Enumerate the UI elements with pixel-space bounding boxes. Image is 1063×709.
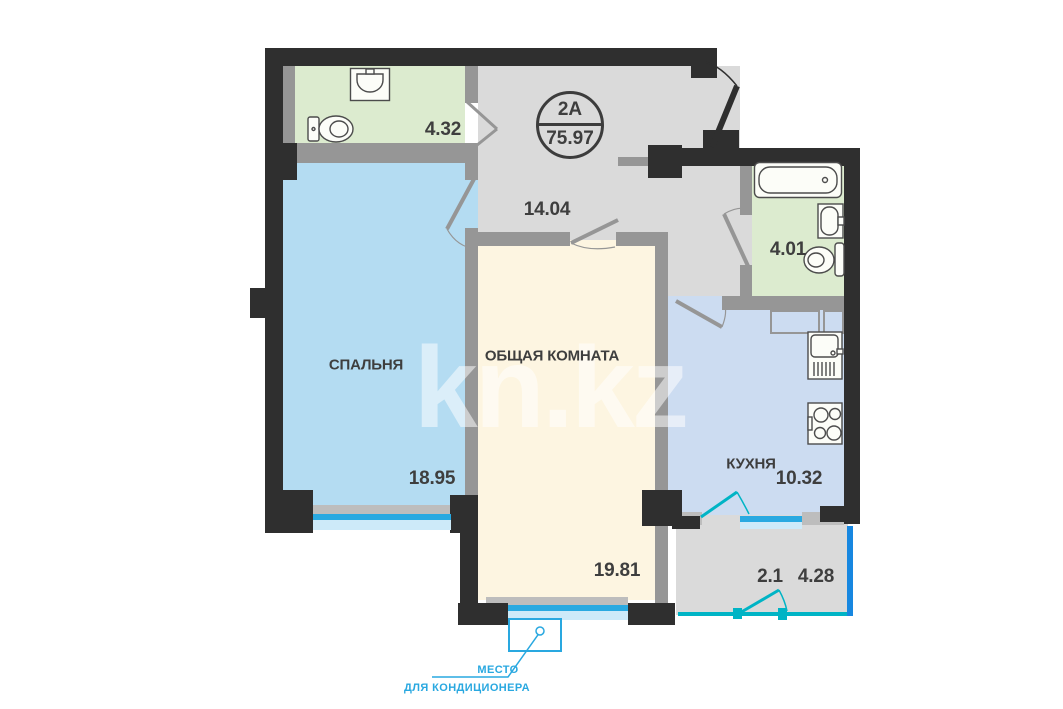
wall-segment [283,143,478,163]
room-balcony [676,515,848,615]
toilet-icon [307,112,355,146]
balcony-door-post [778,608,787,620]
label-wc-area: 4.32 [425,119,461,141]
wall-segment [265,490,313,533]
label-bedroom-area: 18.95 [409,468,456,490]
wall-segment [265,143,297,180]
bathtub-icon [753,161,843,199]
wall-segment [740,166,752,215]
label-kitchen-name: КУХНЯ [726,456,775,473]
wall-segment [703,130,739,150]
unit-badge: 2А 75.97 [536,91,604,159]
kitchen-sink-icon [807,331,845,381]
badge-divider [539,123,601,126]
wall-segment [265,48,283,525]
unit-type-label: 2А [539,99,601,121]
ac-note-line1: МЕСТО [477,664,518,676]
label-kitchen-area: 10.32 [776,468,823,490]
balcony-door-post [733,608,742,619]
toilet-icon [802,240,846,280]
wall-segment [618,157,648,166]
sink-icon [817,203,845,239]
kitchen-window-reveal [740,522,802,529]
wall-segment [672,516,700,529]
label-hallway-area: 14.04 [524,199,571,221]
wall-segment [722,296,844,310]
wall-segment [616,232,668,246]
unit-area-label: 75.97 [539,128,601,150]
label-balcony-coeff: 2.1 [757,566,783,588]
label-bedroom-name: СПАЛЬНЯ [329,357,403,374]
wall-segment [628,603,675,625]
wall-segment [820,506,860,522]
label-bathroom-area: 4.01 [770,239,806,261]
ac-spot-box [508,618,562,652]
label-living-area: 19.81 [594,560,641,582]
watermark: kn.kz [414,322,687,454]
wall-segment [465,163,478,180]
label-balcony-area: 4.28 [798,566,834,588]
wall-segment [458,603,508,625]
label-living-name: ОБЩАЯ КОМНАТА [485,348,619,365]
room-hallway-bath-gap [740,215,752,265]
bedroom-window-reveal [313,520,451,530]
floor-plan: kn.kz 2А 75.97 4.32 14.04 4.01 СПАЛЬНЯ 1… [0,0,1063,709]
balcony-glazing-edge [847,526,853,616]
wall-segment [844,148,860,524]
wall-segment [283,66,295,143]
wall-segment [265,48,705,66]
wall-segment [465,66,478,103]
wall-segment [691,48,717,78]
wall-segment [655,296,662,310]
stove-icon [807,402,845,446]
sink-icon [349,67,391,103]
wall-segment [250,288,265,318]
balcony-glazing-line [678,612,850,616]
ac-note-line2: ДЛЯ КОНДИЦИОНЕРА [404,682,530,694]
wall-segment [478,232,570,246]
